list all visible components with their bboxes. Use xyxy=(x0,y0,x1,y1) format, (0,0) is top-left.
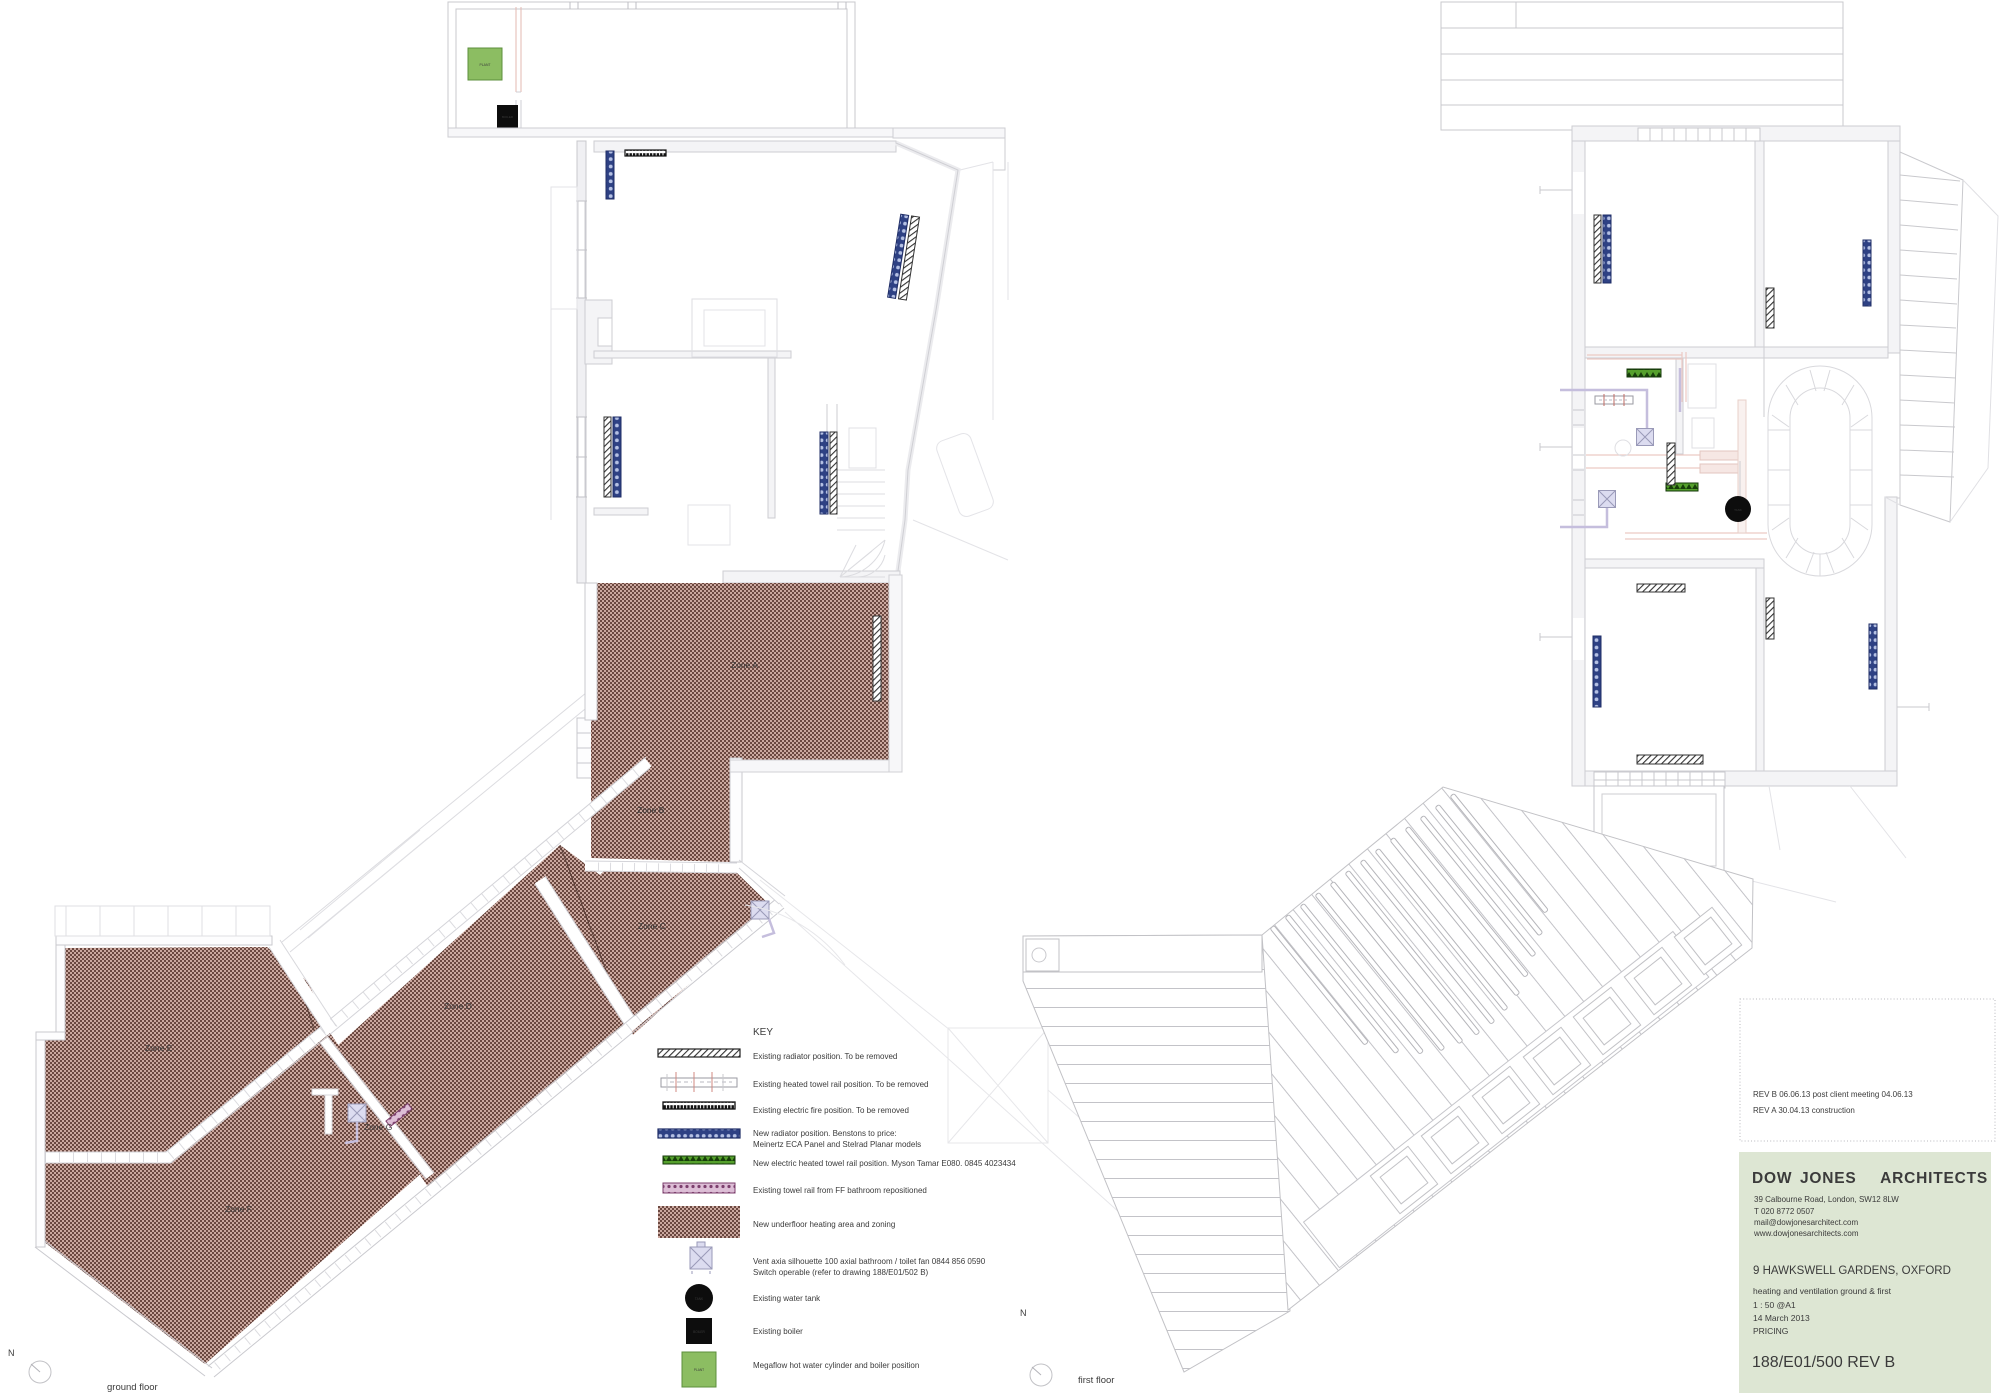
svg-text:Existing boiler: Existing boiler xyxy=(753,1327,803,1336)
svg-text:9 HAWKSWELL GARDENS, OXFORD: 9 HAWKSWELL GARDENS, OXFORD xyxy=(1753,1265,1951,1277)
svg-text:TANK: TANK xyxy=(1734,508,1742,512)
svg-text:BOILER: BOILER xyxy=(502,115,514,119)
svg-text:Meinertz ECA Panel and Stelrad: Meinertz ECA Panel and Stelrad Planar mo… xyxy=(753,1140,921,1149)
svg-text:REV B 06.06.13 post client mee: REV B 06.06.13 post client meeting 04.06… xyxy=(1753,1090,1913,1099)
svg-text:PLANT: PLANT xyxy=(480,63,491,67)
svg-text:New underfloor heating area an: New underfloor heating area and zoning xyxy=(753,1220,895,1229)
svg-text:Vent axia silhouette 100 axial: Vent axia silhouette 100 axial bathroom … xyxy=(753,1257,986,1266)
svg-text:PRICING: PRICING xyxy=(1753,1326,1788,1336)
svg-text:KEY: KEY xyxy=(753,1027,773,1038)
svg-text:N: N xyxy=(1020,1308,1027,1318)
svg-text:Zone B: Zone B xyxy=(637,805,665,815)
svg-text:Existing water tank: Existing water tank xyxy=(753,1294,821,1303)
svg-text:188/E01/500 REV B: 188/E01/500 REV B xyxy=(1752,1354,1895,1371)
svg-text:39 Calbourne Road, London, SW1: 39 Calbourne Road, London, SW12 8LW xyxy=(1754,1195,1899,1204)
svg-text:Existing electric fire positio: Existing electric fire position. To be r… xyxy=(753,1106,909,1115)
svg-text:ARCHITECTS: ARCHITECTS xyxy=(1880,1170,1988,1187)
svg-text:T 020 8772 0507: T 020 8772 0507 xyxy=(1754,1207,1815,1216)
svg-text:14 March 2013: 14 March 2013 xyxy=(1753,1313,1810,1323)
svg-text:Zone D: Zone D xyxy=(444,1001,472,1011)
svg-text:BOILER: BOILER xyxy=(693,1330,705,1334)
svg-text:Zone A: Zone A xyxy=(731,660,758,670)
svg-text:JONES: JONES xyxy=(1800,1170,1857,1187)
svg-text:Zone G: Zone G xyxy=(364,1122,392,1132)
svg-text:Zone F: Zone F xyxy=(225,1204,252,1214)
svg-text:1 : 50 @A1: 1 : 50 @A1 xyxy=(1753,1300,1796,1310)
svg-text:TANK: TANK xyxy=(695,1297,704,1301)
svg-text:Existing radiator position. To: Existing radiator position. To be remove… xyxy=(753,1052,897,1061)
svg-text:Megaflow hot water cylinder an: Megaflow hot water cylinder and boiler p… xyxy=(753,1361,919,1370)
svg-text:ground floor: ground floor xyxy=(107,1382,158,1393)
svg-text:Zone E: Zone E xyxy=(145,1043,173,1053)
svg-text:Existing towel rail from FF ba: Existing towel rail from FF bathroom rep… xyxy=(753,1186,927,1195)
svg-text:heating and ventilation ground: heating and ventilation ground & first xyxy=(1753,1286,1892,1296)
svg-text:Existing heated towel rail pos: Existing heated towel rail position. To … xyxy=(753,1080,929,1089)
svg-text:Zone C: Zone C xyxy=(638,921,666,931)
svg-text:mail@dowjonesarchitect.com: mail@dowjonesarchitect.com xyxy=(1754,1218,1858,1227)
svg-text:first floor: first floor xyxy=(1078,1375,1114,1386)
svg-text:REV A 30.04.13 construction: REV A 30.04.13 construction xyxy=(1753,1106,1855,1115)
svg-text:New radiator position. Benston: New radiator position. Benstons to price… xyxy=(753,1129,897,1138)
svg-text:Switch operable (refer to draw: Switch operable (refer to drawing 188/E0… xyxy=(753,1268,929,1277)
svg-text:DOW: DOW xyxy=(1752,1170,1792,1187)
svg-text:PLANT: PLANT xyxy=(694,1368,704,1372)
svg-text:www.dowjonesarchitects.com: www.dowjonesarchitects.com xyxy=(1753,1229,1859,1238)
svg-text:New electric heated towel rail: New electric heated towel rail position.… xyxy=(753,1159,1016,1168)
svg-text:N: N xyxy=(8,1348,15,1358)
